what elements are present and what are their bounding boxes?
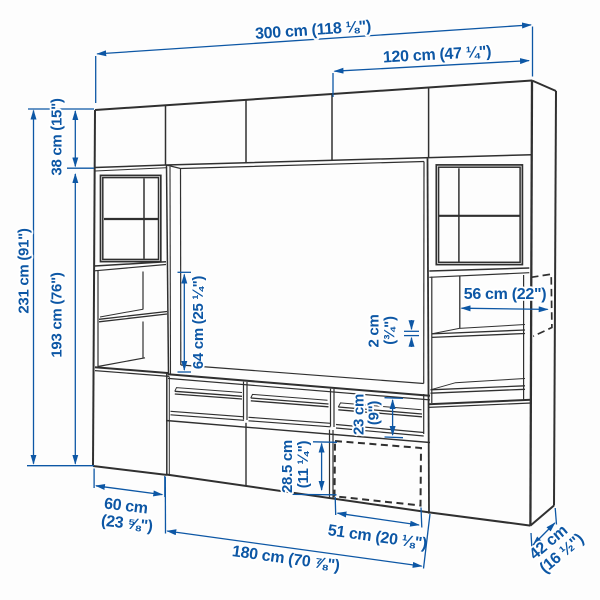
svg-text:2 cm: 2 cm — [366, 315, 383, 348]
svg-text:(¾"): (¾") — [382, 316, 399, 345]
svg-text:51 cm (20 ⅛"): 51 cm (20 ⅛") — [327, 522, 428, 553]
svg-text:(9"): (9") — [366, 401, 383, 426]
svg-text:(11 ¼"): (11 ¼") — [295, 440, 312, 488]
svg-text:56 cm (22"): 56 cm (22") — [464, 286, 547, 303]
svg-text:28.5 cm: 28.5 cm — [279, 440, 296, 493]
svg-text:193 cm (76"): 193 cm (76") — [49, 272, 66, 358]
svg-text:38 cm (15"): 38 cm (15") — [49, 98, 66, 175]
svg-text:231 cm (91"): 231 cm (91") — [16, 228, 33, 314]
svg-text:64 cm (25 ¼"): 64 cm (25 ¼") — [190, 276, 207, 370]
